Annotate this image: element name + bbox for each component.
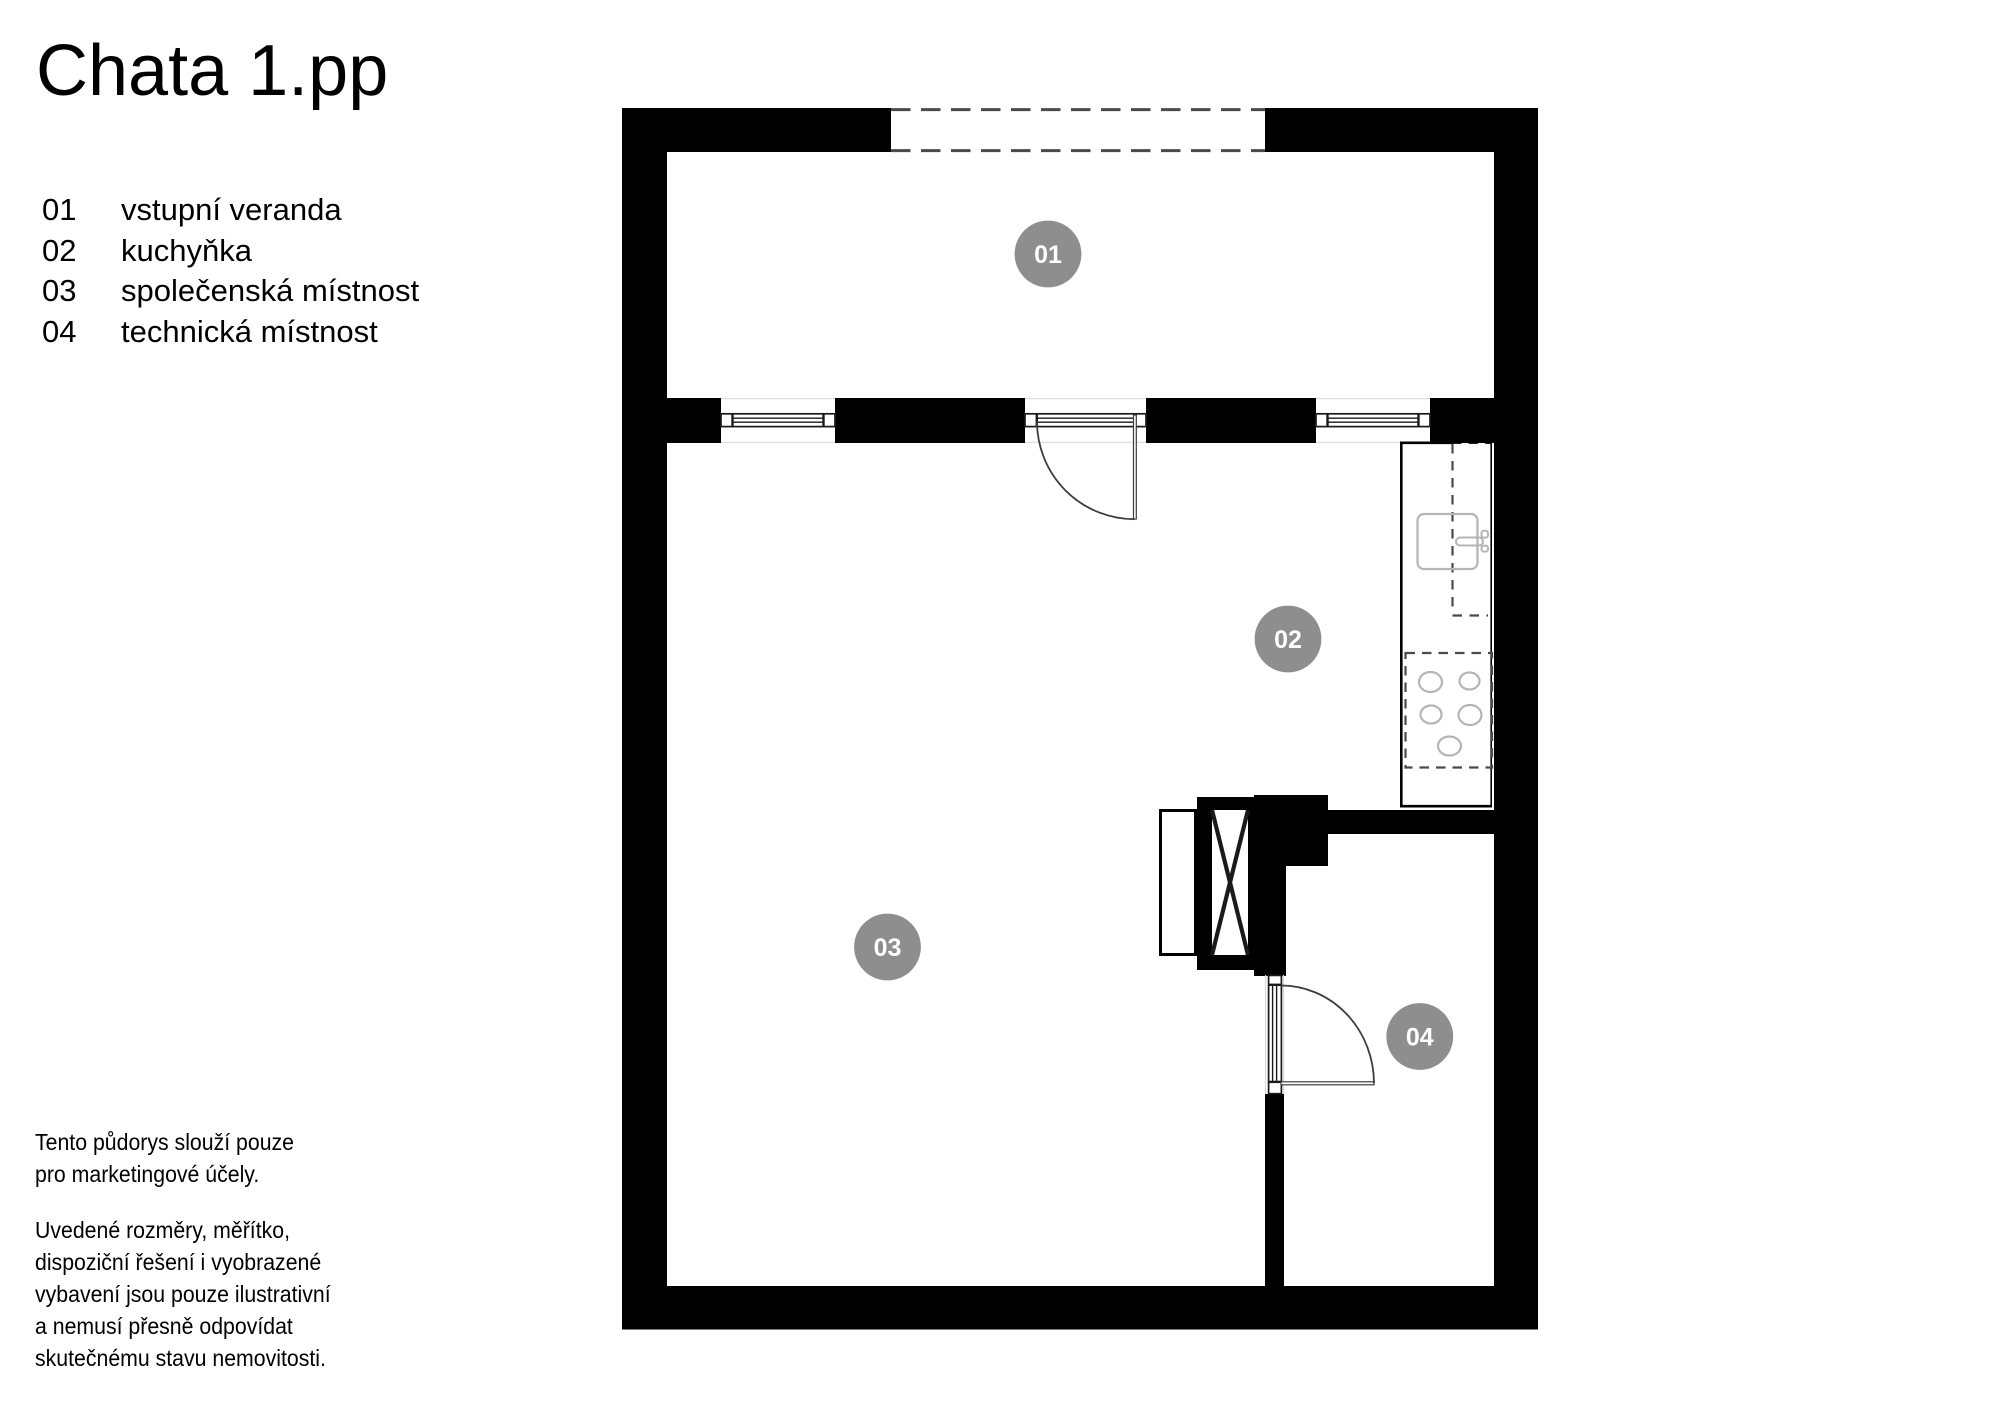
svg-text:02: 02 [1274, 626, 1302, 654]
svg-text:04: 04 [1406, 1024, 1434, 1052]
svg-text:03: 03 [874, 934, 902, 962]
svg-text:01: 01 [1034, 241, 1062, 269]
